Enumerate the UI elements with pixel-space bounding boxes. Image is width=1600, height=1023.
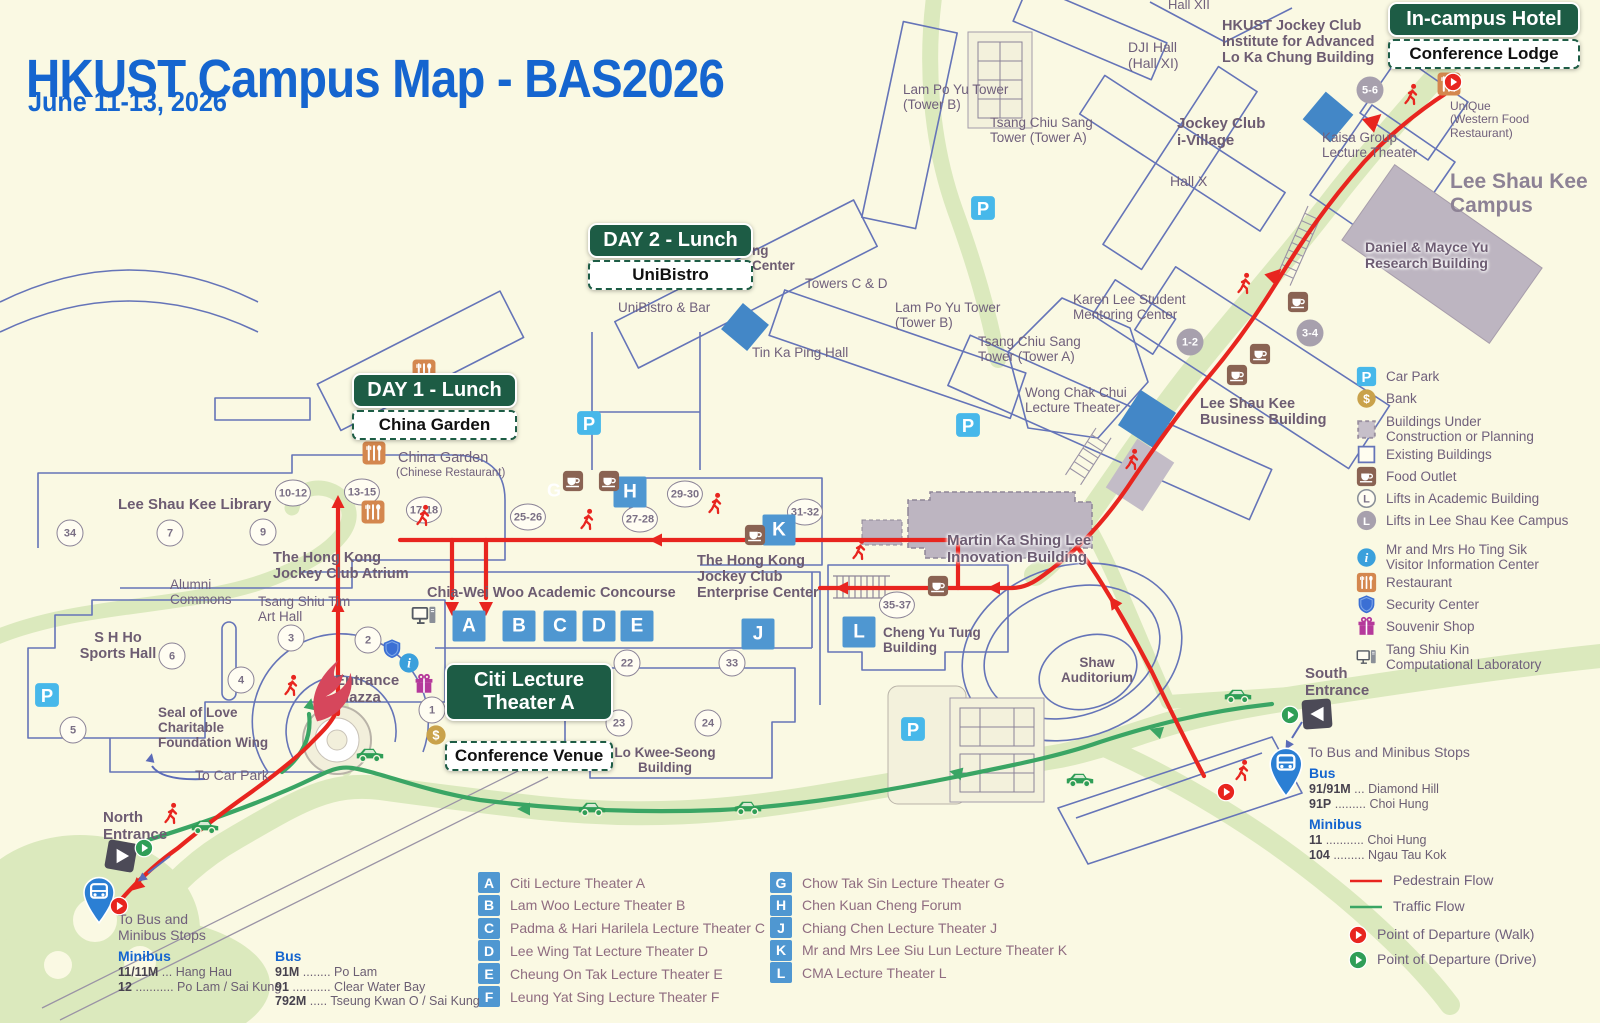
walker-icon [848,537,872,563]
svg-text:P: P [907,719,919,740]
bus-group-heading: Bus [275,948,301,964]
legend-item-existing: Existing Buildings [1356,444,1492,465]
food-outlet-icon [562,470,584,492]
bank-icon: $ [1356,388,1377,409]
map-label: S H Ho Sports Hall [80,630,157,662]
bus-route: 12 ........... Po Lam / Sai Kung [118,980,281,994]
legend-label: Souvenir Shop [1386,619,1475,634]
page-subtitle: June 11-13, 2026 [28,86,227,118]
conference-venue-label: Conference Venue [445,741,613,771]
legend-label: Bank [1386,391,1417,406]
lift-badge: 4 [228,667,255,694]
walker-icon [160,801,184,827]
map-label: Lam Po Yu Tower (Tower B) [903,82,1008,112]
map-label: Lee Shau Kee Campus [1450,170,1588,217]
car-icon [1223,682,1253,705]
car-park-icon: P [900,716,926,742]
theater-name: Padma & Hari Harilela Lecture Theater C [510,920,765,936]
flow-legend-item-dep-walk: Point of Departure (Walk) [1348,925,1534,945]
svg-text:$: $ [1363,392,1370,406]
map-label: Seal of Love Charitable Foundation Wing [158,705,268,750]
car-icon [1065,766,1095,789]
food-outlet-icon [598,470,620,492]
legend-label: Car Park [1386,369,1439,384]
theater-letter-e: E [478,963,500,984]
lecture-theater-marker-j: J [742,619,775,650]
bus-route-number: 104 [1309,848,1330,862]
bus-route: 792M ..... Tseung Kwan O / Sai Kung [275,994,480,1008]
lift-badge: 2 [355,627,382,654]
map-label: To Car Park [195,768,269,784]
legend-item-car-park: PCar Park [1356,366,1439,387]
legend-item-food-outlet: Food Outlet [1356,466,1457,487]
legend-item-bank: $Bank [1356,388,1417,409]
dep-walk-icon [1216,782,1236,802]
map-label: DJI Hall (Hall XI) [1128,40,1179,71]
legend-item-souvenir: Souvenir Shop [1356,616,1475,637]
dep-drive-icon [1348,950,1368,970]
svg-text:L: L [1363,493,1370,505]
map-label: Jockey Club i-Village [1177,116,1265,150]
dep-walk-icon [1443,72,1463,92]
legend-item-security: Security Center [1356,594,1479,615]
flow-legend-item-ped-flow: Pedestrain Flow [1348,873,1493,889]
bus-group-heading: Minibus [118,948,171,964]
visitor-info-icon: i [1356,547,1377,568]
flow-legend-item-dep-drive: Point of Departure (Drive) [1348,950,1537,970]
lecture-theater-marker-c: C [544,611,577,642]
map-label: To Bus and Minibus Stops [1308,745,1470,761]
walker-icon [704,491,728,517]
theater-legend-item-a: ACiti Lecture Theater A [478,872,645,893]
bus-route: 91P ......... Choi Hung [1309,797,1429,811]
map-label: UniBistro & Bar [618,300,710,315]
legend-label: Lifts in Academic Building [1386,491,1539,506]
map-label: Lam Po Yu Tower (Tower B) [895,300,1000,330]
legend-item-visitor-info: iMr and Mrs Ho Ting Sik Visitor Informat… [1356,542,1539,572]
map-label: Tsang Chiu Sang Tower (Tower A) [990,115,1093,145]
theater-legend-item-d: DLee Wing Tat Lecture Theater D [478,940,708,961]
theater-legend-item-k: KMr and Mrs Lee Siu Lun Lecture Theater … [770,940,1067,961]
lift-badge: 6 [159,643,186,670]
map-label: Daniel & Mayce Yu Research Building [1365,240,1488,271]
security-icon [381,638,403,660]
map-label: The Hong Kong Jockey Club Enterprise Cen… [697,553,819,602]
walker-icon [576,507,600,533]
theater-name: Leung Yat Sing Lecture Theater F [510,989,719,1005]
bus-route-number: 91 [275,980,289,994]
map-label: Hall X [1170,174,1207,190]
map-label: Shaw Auditorium [1061,655,1133,685]
day2-lunch-badge: DAY 2 - Lunch UniBistro [588,223,753,290]
computer-icon [1356,647,1377,668]
legend-label: Mr and Mrs Ho Ting Sik Visitor Informati… [1386,542,1539,572]
theater-letter-g: G [770,872,792,893]
dep-drive-icon [134,838,154,858]
theater-letter-k: K [770,940,792,961]
theater-name: Mr and Mrs Lee Siu Lun Lecture Theater K [802,942,1067,958]
dep-walk-icon [1348,925,1368,945]
theater-name: Lam Woo Lecture Theater B [510,897,685,913]
walker-icon [1233,271,1257,297]
map-label: Martin Ka Shing Lee Innovation Building [947,533,1091,567]
lift-badge: 33 [719,650,746,677]
theater-name: CMA Lecture Theater L [802,965,946,981]
lift-badge: 35-37 [879,592,915,619]
theater-legend-item-g: GChow Tak Sin Lecture Theater G [770,872,1005,893]
svg-text:P: P [583,413,595,434]
theater-letter-h: H [770,895,792,916]
legend-item-construction: Buildings Under Construction or Planning [1356,414,1534,444]
security-icon [1356,594,1377,615]
theater-legend-item-b: BLam Woo Lecture Theater B [478,895,685,916]
theater-letter-j: J [770,917,792,938]
lift-badge: 22 [614,650,641,677]
food-outlet-icon [1226,364,1248,386]
bus-route-number: 12 [118,980,132,994]
flow-legend-label: Point of Departure (Drive) [1377,952,1537,968]
svg-text:i: i [407,656,411,671]
map-label: (Chinese Restaurant) [396,467,505,480]
lift-badge: 7 [157,520,184,547]
map-label: Alumni Commons [170,577,232,607]
bus-route: 91 ........... Clear Water Bay [275,980,425,994]
lift-lsk-icon: L [1356,510,1377,531]
lift-badge: 3 [278,625,305,652]
car-park-icon: P [955,412,981,438]
day2-lunch-title: DAY 2 - Lunch [588,223,753,258]
lecture-theater-marker-k: K [763,515,796,546]
map-label: Hall XII [1168,0,1210,13]
bus-route-number: 792M [275,994,306,1008]
lift-badge: 29-30 [667,481,703,508]
lift-badge: 1-2 [1177,329,1204,356]
svg-text:P: P [41,685,53,706]
bus-route-number: 91/91M [1309,782,1351,796]
day1-lunch-badge: DAY 1 - Lunch China Garden [352,373,517,440]
bus-route: 91/91M ... Diamond Hill [1309,782,1439,796]
svg-text:P: P [962,415,974,436]
car-icon [733,794,763,817]
map-label: Cheng Yu Tung Building [883,625,981,655]
lift-academic-icon: L [1356,488,1377,509]
car-park-icon: P [1356,366,1377,387]
bus-route: 11 ........... Choi Hung [1309,833,1426,847]
walker-icon [1121,447,1145,473]
flow-legend-label: Point of Departure (Walk) [1377,927,1534,943]
lift-badge: 5 [60,717,87,744]
flow-legend-label: Pedestrain Flow [1393,873,1493,889]
lift-badge: 10-12 [275,480,311,507]
walker-icon [280,673,304,699]
day1-lunch-title: DAY 1 - Lunch [352,373,517,408]
bus-pin-icon [1266,746,1306,798]
map-label: Tsang Shiu Tim Art Hall [258,594,350,624]
car-icon [355,741,385,764]
bank-icon: $ [425,724,447,746]
map-label: Karen Lee Student Mentoring Center [1073,292,1186,322]
bus-route-number: 11 [1309,833,1322,847]
conference-venue-badge: Citi Lecture Theater A Conference Venue [445,645,613,789]
theater-legend-item-h: HChen Kuan Cheng Forum [770,895,962,916]
svg-text:P: P [977,198,989,219]
food-outlet-icon [1287,291,1309,313]
dep-drive-icon [1280,705,1300,725]
map-label: Kaisa Group Lecture Theater [1322,130,1417,160]
theater-name: Cheung On Tak Lecture Theater E [510,966,723,982]
restaurant-icon [362,441,387,466]
lift-badge: 5-6 [1357,77,1384,104]
legend-item-lift-academic: LLifts in Academic Building [1356,488,1539,509]
lift-badge: 1 [419,697,446,724]
walker-icon [1231,758,1255,784]
map-label: Towers C & D [805,276,888,291]
bus-group-heading: Bus [1309,765,1335,781]
theater-letter-f: F [478,986,500,1007]
entrance-s-icon [1298,695,1336,733]
lecture-theater-marker-a: A [453,611,486,642]
legend-label: Food Outlet [1386,469,1457,484]
day2-lunch-venue: UniBistro [588,260,753,290]
walker-icon [412,503,436,529]
svg-text:$: $ [432,728,439,743]
theater-legend-item-c: CPadma & Hari Harilela Lecture Theater C [478,918,765,939]
legend-label: Security Center [1386,597,1479,612]
bus-route-number: 91P [1309,797,1331,811]
car-park-icon: P [970,195,996,221]
map-label: UniQue (Western Food Restaurant) [1450,100,1529,140]
computer-icon [411,603,437,629]
conference-venue-title: Citi Lecture Theater A [445,663,613,721]
day1-lunch-venue: China Garden [352,410,517,440]
restaurant-icon [1356,572,1377,593]
ped-flow-icon [1348,874,1384,888]
theater-letter-a: A [478,872,500,893]
theater-name: Citi Lecture Theater A [510,875,645,891]
lift-badge: 9 [250,519,277,546]
theater-letter-c: C [478,918,500,939]
walker-icon [1400,82,1424,108]
theater-legend-item-f: FLeung Yat Sing Lecture Theater F [478,986,719,1007]
car-park-icon: P [576,410,602,436]
souvenir-icon [413,673,435,695]
legend-item-restaurant: Restaurant [1356,572,1452,593]
map-label: To Bus and Minibus Stops [118,912,206,943]
souvenir-icon [1356,616,1377,637]
traffic-flow-icon [1348,900,1384,914]
theater-name: Chow Tak Sin Lecture Theater G [802,875,1005,891]
lift-badge: 25-26 [510,504,546,531]
existing-icon [1356,444,1377,465]
map-label: Tin Ka Ping Hall [752,345,848,360]
map-label: HKUST Jockey Club Institute for Advanced… [1222,18,1375,67]
legend-item-lift-lsk: LLifts in Lee Shau Kee Campus [1356,510,1568,531]
lift-badge: 27-28 [622,506,658,533]
bus-group-heading: Minibus [1309,816,1362,832]
theater-letter-b: B [478,895,500,916]
food-outlet-icon [1356,466,1377,487]
map-label: Tsang Chiu Sang Tower (Tower A) [978,334,1081,364]
map-label: Chia-Wei Woo Academic Concourse [427,585,676,601]
theater-legend-item-e: ECheung On Tak Lecture Theater E [478,963,723,984]
food-outlet-icon [1249,343,1271,365]
map-label: Wong Chak Chui Lecture Theater [1025,385,1127,415]
bus-route: 11/11M ... Hang Hau [118,965,232,979]
legend-item-computer: Tang Shiu Kin Computational Laboratory [1356,642,1541,672]
bus-route: 104 ......... Ngau Tau Kok [1309,848,1446,862]
map-label: China Garden [398,450,488,466]
legend-label: Lifts in Lee Shau Kee Campus [1386,513,1568,528]
dep-walk-icon [109,896,129,916]
map-label: Lo Kwee-Seong Building [614,745,715,775]
svg-text:L: L [1363,516,1370,528]
theater-letter-d: D [478,940,500,961]
theater-name: Lee Wing Tat Lecture Theater D [510,943,708,959]
lift-badge: 3-4 [1297,320,1324,347]
restaurant-icon [361,500,386,525]
lift-badge: 34 [57,520,84,547]
hotel-badge: In-campus Hotel Conference Lodge [1388,2,1580,69]
map-label: Lee Shau Kee Library [118,497,271,514]
car-icon [190,813,220,836]
bus-route: 91M ........ Po Lam [275,965,377,979]
campus-map: HKUST Campus Map - BAS2026 June 11-13, 2… [0,0,1600,1023]
construction-icon [1356,419,1377,440]
lecture-theater-marker-b: B [503,611,536,642]
legend-label: Existing Buildings [1386,447,1492,462]
flow-legend-label: Traffic Flow [1393,899,1465,915]
theater-letter-l: L [770,962,792,983]
svg-text:i: i [1365,549,1369,564]
theater-legend-item-l: LCMA Lecture Theater L [770,962,946,983]
flow-legend-item-traffic-flow: Traffic Flow [1348,899,1465,915]
lecture-theater-marker-e: E [621,611,654,642]
lecture-theater-marker-d: D [583,611,616,642]
bus-route-number: 91M [275,965,299,979]
food-outlet-icon [744,524,766,546]
legend-label: Buildings Under Construction or Planning [1386,414,1534,444]
flame-icon [306,657,354,724]
lift-badge: 24 [695,710,722,737]
svg-text:P: P [1362,370,1372,386]
theater-name: Chen Kuan Cheng Forum [802,897,962,913]
food-outlet-icon [927,575,949,597]
hotel-label: Conference Lodge [1388,39,1580,69]
legend-label: Restaurant [1386,575,1452,590]
bus-route-number: 11/11M [118,965,158,979]
car-icon [577,795,607,818]
theater-legend-item-j: JChiang Chen Lecture Theater J [770,917,997,938]
theater-name: Chiang Chen Lecture Theater J [802,920,997,936]
car-park-icon: P [34,682,60,708]
legend-label: Tang Shiu Kin Computational Laboratory [1386,642,1541,672]
map-label: ng Center [752,243,795,273]
map-label: Lee Shau Kee Business Building [1200,396,1327,428]
hotel-title: In-campus Hotel [1388,2,1580,37]
map-label: The Hong Kong Jockey Club Atrium [273,550,409,582]
lecture-theater-marker-l: L [843,617,876,648]
